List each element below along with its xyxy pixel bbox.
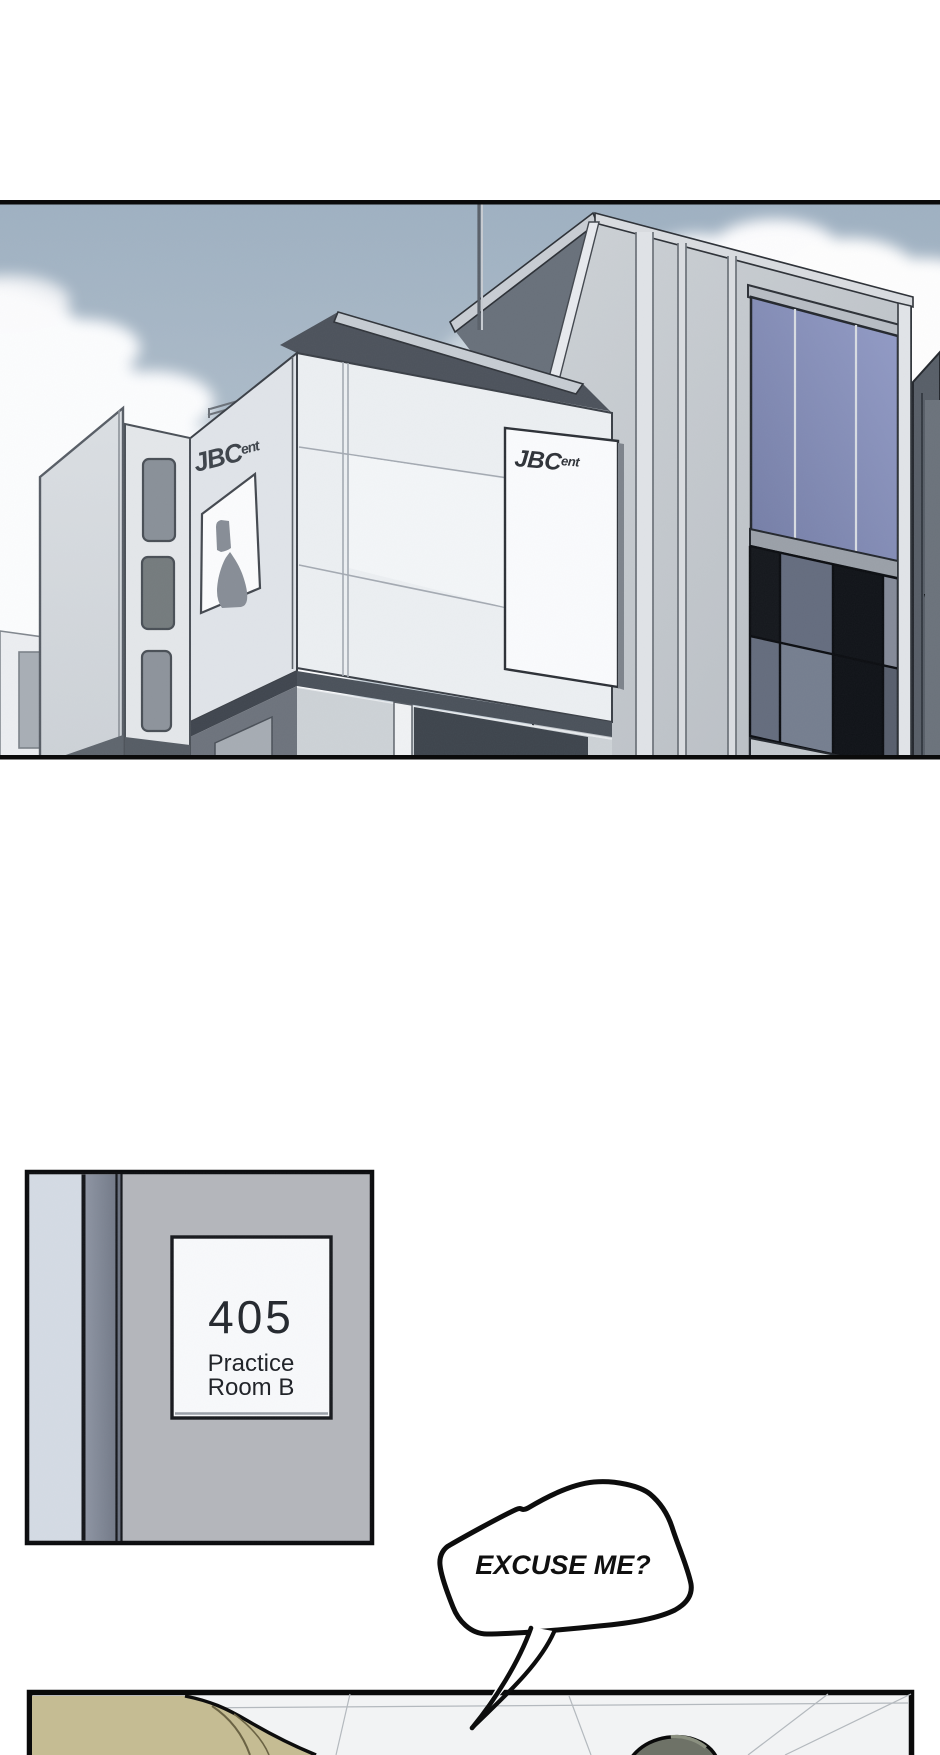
svg-text:EXCUSE ME?: EXCUSE ME? — [475, 1550, 651, 1580]
